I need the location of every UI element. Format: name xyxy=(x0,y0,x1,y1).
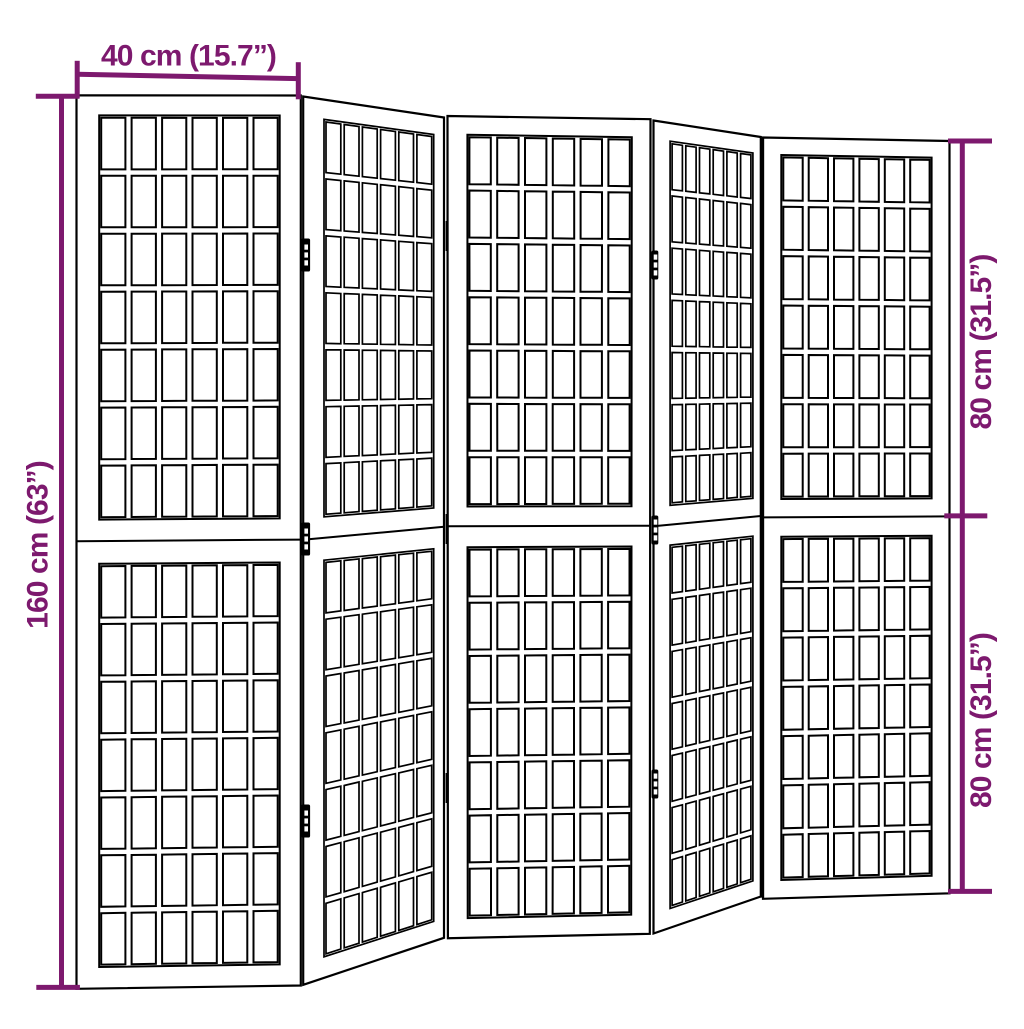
svg-text:160 cm (63”): 160 cm (63”) xyxy=(22,461,55,629)
svg-text:80 cm (31.5”): 80 cm (31.5”) xyxy=(965,633,998,808)
svg-text:80 cm (31.5”): 80 cm (31.5”) xyxy=(965,254,998,429)
svg-text:40 cm (15.7”): 40 cm (15.7”) xyxy=(101,40,276,73)
